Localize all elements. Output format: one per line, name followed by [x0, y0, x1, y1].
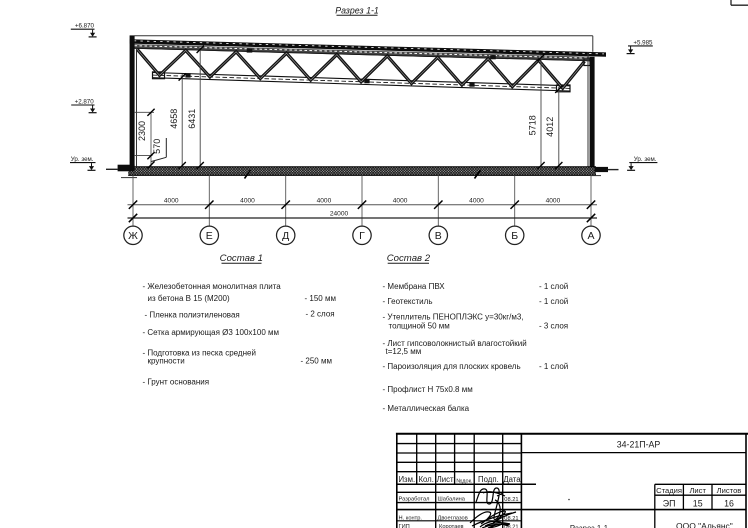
- svg-text:2300: 2300: [137, 121, 147, 141]
- svg-text:- Грунт основания: - Грунт основания: [143, 377, 210, 386]
- svg-text:ЭП: ЭП: [663, 499, 676, 509]
- svg-text:Д: Д: [282, 230, 289, 242]
- svg-text:Состав 2: Состав 2: [387, 253, 431, 264]
- svg-text:6431: 6431: [187, 109, 197, 129]
- svg-text:24000: 24000: [330, 211, 349, 218]
- svg-text:Двоеглазов: Двоеглазов: [438, 515, 468, 521]
- svg-text:Разрез 1-1: Разрез 1-1: [570, 524, 608, 528]
- svg-text:- 2 слоя: - 2 слоя: [306, 310, 335, 319]
- svg-text:4000: 4000: [317, 197, 332, 204]
- svg-text:Н. контр.: Н. контр.: [399, 515, 423, 521]
- svg-text:- Утеплитель ПЕНОПЛЭКС у=30кг/: - Утеплитель ПЕНОПЛЭКС у=30кг/м3,: [383, 313, 524, 322]
- svg-text:- Профлист Н 75x0.8 мм: - Профлист Н 75x0.8 мм: [383, 385, 473, 394]
- svg-text:4000: 4000: [546, 197, 561, 204]
- svg-text:Шабалина: Шабалина: [438, 496, 466, 502]
- svg-text:ГИП: ГИП: [399, 524, 410, 528]
- svg-text:- Железобетонная монолитная п: - Железобетонная монолитная плита: [143, 282, 282, 291]
- svg-text:Состав 1: Состав 1: [220, 253, 263, 264]
- svg-text:Б: Б: [511, 230, 518, 242]
- svg-text:из бетона В 15 (М200): из бетона В 15 (М200): [148, 294, 231, 303]
- svg-text:толщиной 50 мм: толщиной 50 мм: [389, 322, 450, 331]
- svg-text:Ж: Ж: [128, 230, 138, 242]
- svg-text:4658: 4658: [169, 109, 179, 129]
- svg-text:Изм.: Изм.: [398, 475, 415, 484]
- svg-text:34-21П-АР: 34-21П-АР: [617, 440, 661, 450]
- svg-text:Листов: Листов: [717, 486, 742, 495]
- svg-text:Г: Г: [359, 230, 365, 242]
- svg-text:4000: 4000: [393, 197, 408, 204]
- svg-text:570: 570: [152, 139, 162, 154]
- svg-text:- Мембрана ПВХ: - Мембрана ПВХ: [383, 282, 446, 291]
- svg-text:крупности: крупности: [148, 356, 185, 365]
- svg-text:Коротаев: Коротаев: [439, 524, 464, 528]
- svg-text:4000: 4000: [164, 197, 179, 204]
- svg-text:16: 16: [724, 499, 734, 509]
- svg-text:- 150 мм: - 150 мм: [305, 294, 336, 303]
- svg-text:- Геотекстиль: - Геотекстиль: [383, 297, 433, 306]
- svg-text:08.21: 08.21: [504, 497, 518, 503]
- svg-text:Разработал: Разработал: [399, 496, 430, 502]
- svg-text:- Пароизоляция для плоских кро: - Пароизоляция для плоских кровель: [383, 362, 521, 371]
- svg-text:- 1 слой: - 1 слой: [539, 297, 568, 306]
- svg-text:Стадия: Стадия: [656, 486, 682, 495]
- svg-text:Е: Е: [206, 230, 213, 242]
- svg-text:Подп.: Подп.: [478, 475, 499, 484]
- svg-text:- Сетка армирующая Ø3 100x100: - Сетка армирующая Ø3 100x100 мм: [143, 328, 279, 337]
- svg-text:t=12,5 мм: t=12,5 мм: [386, 347, 422, 356]
- svg-text:- 1 слой: - 1 слой: [539, 362, 568, 371]
- svg-text:- 250 мм: - 250 мм: [301, 356, 332, 365]
- svg-text:Лист: Лист: [689, 486, 706, 495]
- svg-text:Разрез 1-1: Разрез 1-1: [335, 5, 379, 15]
- svg-text:- 3 слоя: - 3 слоя: [539, 322, 568, 331]
- svg-text:4012: 4012: [545, 117, 555, 137]
- svg-text:- Металлическая балка: - Металлическая балка: [383, 404, 470, 413]
- svg-text:А: А: [587, 230, 594, 242]
- svg-text:4000: 4000: [469, 197, 484, 204]
- svg-text:Дата: Дата: [503, 475, 521, 484]
- svg-text:Кол.: Кол.: [418, 475, 433, 484]
- svg-text:15: 15: [693, 499, 703, 509]
- svg-text:В: В: [435, 230, 442, 242]
- svg-text:№док.: №док.: [456, 478, 473, 484]
- svg-text:4000: 4000: [240, 197, 255, 204]
- svg-text:Лист: Лист: [437, 475, 454, 484]
- svg-text:- 1 слой: - 1 слой: [539, 282, 568, 291]
- svg-text:ООО "Альянс": ООО "Альянс": [676, 521, 733, 528]
- svg-text:5718: 5718: [527, 115, 537, 135]
- svg-text:- Пленка полиэтиленовая: - Пленка полиэтиленовая: [145, 310, 240, 319]
- svg-text:08.21: 08.21: [504, 516, 518, 522]
